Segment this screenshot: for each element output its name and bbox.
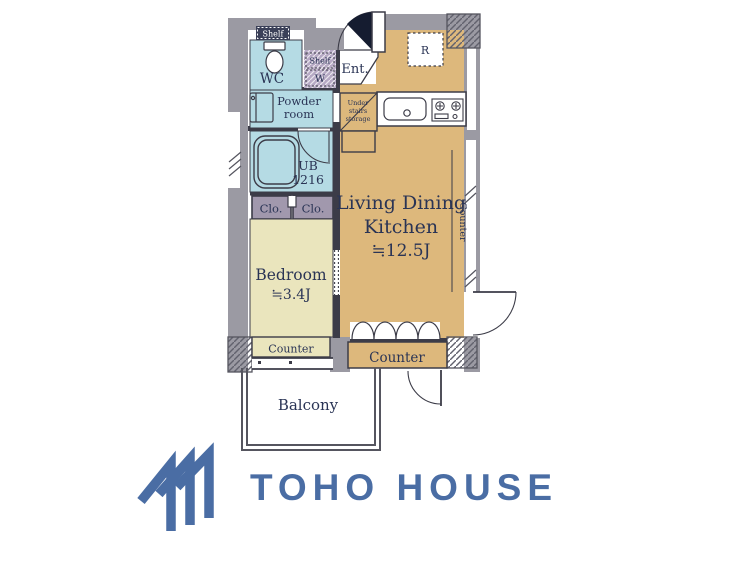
label-ldk-1: Living Dining xyxy=(336,192,466,214)
label-shelf-top: Shelf xyxy=(263,30,285,39)
toilet-icon xyxy=(264,42,285,73)
logo-chevron-icon xyxy=(141,454,209,531)
label-wc: WC xyxy=(260,71,284,87)
label-closet-right: Clo. xyxy=(302,202,325,216)
label-entrance: Ent. xyxy=(341,62,368,77)
closet-divider xyxy=(288,196,296,207)
label-closet-left: Clo. xyxy=(260,202,283,216)
label-powder-1: Powder xyxy=(277,94,321,108)
label-counter-ldk: Counter xyxy=(369,350,425,366)
label-ldk-size: ≒12.5J xyxy=(372,241,431,261)
page: Shelf WC Shelf W Ent. R Powder room Unde… xyxy=(0,0,750,563)
window-marker xyxy=(289,361,292,364)
window-marker xyxy=(258,361,261,364)
label-counter-bedroom: Counter xyxy=(268,343,314,356)
label-shelf-w-2: W xyxy=(315,74,326,85)
logo: TOHO HOUSE xyxy=(141,454,558,531)
label-shelf-w-1: Shelf xyxy=(310,57,332,66)
floor-plan: Shelf WC Shelf W Ent. R Powder room Unde… xyxy=(0,0,750,563)
label-ldk-2: Kitchen xyxy=(364,216,438,238)
label-bedroom: Bedroom xyxy=(255,266,327,284)
label-counter-right: Counter xyxy=(457,202,468,242)
label-ub-1: UB xyxy=(298,158,318,173)
label-understairs-1: Under xyxy=(348,99,370,107)
label-balcony: Balcony xyxy=(278,396,339,414)
label-bedroom-size: ≒3.4J xyxy=(271,287,311,303)
label-understairs-2: stairs xyxy=(349,107,367,115)
label-ub-2: 1216 xyxy=(292,172,324,187)
entrance-door xyxy=(338,12,385,52)
label-understairs-3: storage xyxy=(346,115,371,123)
label-powder-2: room xyxy=(284,107,314,121)
entrance-door-leaf xyxy=(372,12,385,52)
logo-text: TOHO HOUSE xyxy=(250,467,558,508)
label-refrigerator: R xyxy=(421,44,430,57)
bedroom-window xyxy=(252,358,333,369)
balcony-door xyxy=(408,370,441,406)
bedroom-sliding-door xyxy=(333,250,340,295)
